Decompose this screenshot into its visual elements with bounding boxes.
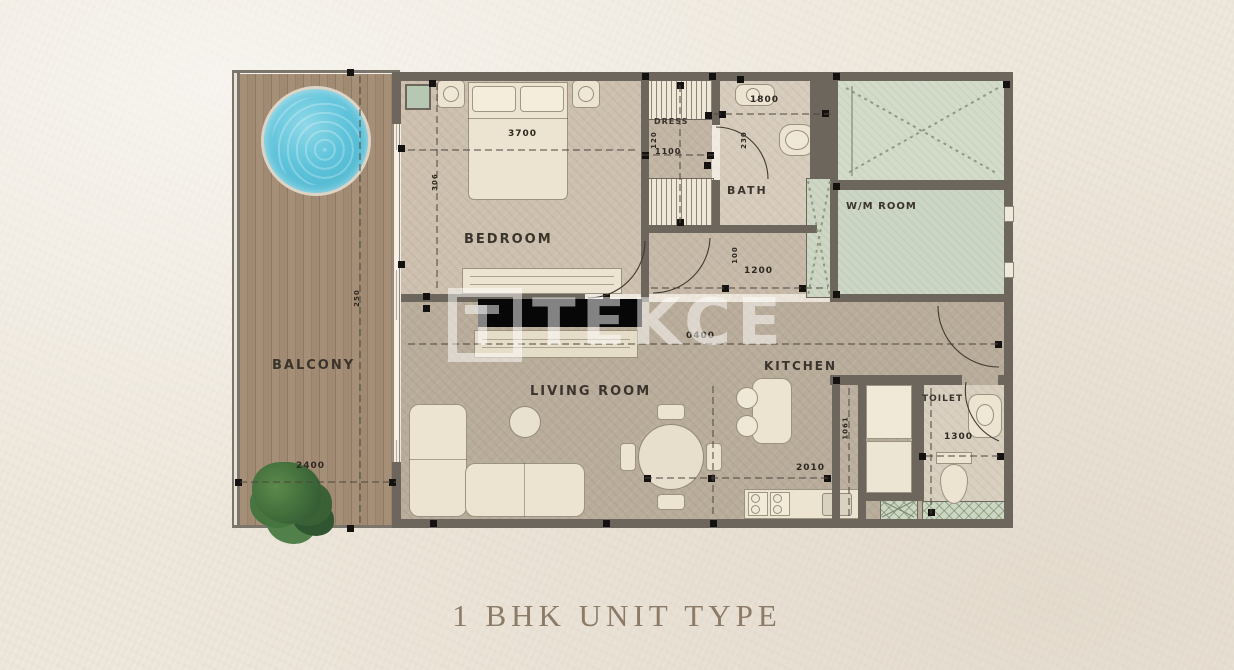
label-dress: DRESS (654, 117, 688, 126)
sofa-seam (409, 459, 467, 460)
duct-small (880, 499, 918, 521)
dim-marker (799, 285, 806, 292)
wall-bedroom-dress (641, 72, 649, 302)
chair (657, 494, 685, 510)
wall-hall (641, 225, 817, 233)
dim-bath-depth: 230 (740, 131, 748, 149)
blanket-line (468, 118, 568, 119)
dim-marker (389, 479, 396, 486)
dim-living-center: 0400 (686, 331, 715, 341)
glass-panel (395, 320, 399, 440)
dim-marker (347, 525, 354, 532)
dim-marker (707, 152, 714, 159)
sink-bowl-icon (976, 404, 994, 426)
tv-panel (478, 299, 642, 327)
sofa-chaise (409, 404, 467, 517)
wall-right (1004, 72, 1013, 528)
label-balcony: BALCONY (272, 358, 355, 373)
dim-marker (833, 73, 840, 80)
dim-marker (347, 69, 354, 76)
dim-marker (235, 479, 242, 486)
dim-kitchen-width: 2010 (796, 463, 825, 473)
wall-bottom (392, 519, 1013, 528)
wall-notch (1004, 206, 1014, 222)
bedroom-dresser (462, 268, 622, 294)
dim-balcony-depth: 250 (353, 289, 361, 307)
label-bedroom: BEDROOM (464, 232, 553, 247)
dim-bath-width: 1800 (750, 95, 779, 105)
dim-marker (709, 73, 716, 80)
label-toilet: TOILET (922, 394, 963, 404)
wall-washer-bottom (858, 493, 924, 501)
ac-unit (405, 84, 431, 110)
dim-marker (833, 291, 840, 298)
wall-stub-bottom-left (392, 462, 401, 528)
balcony-edge-bottom (232, 525, 400, 528)
wc-tank (936, 452, 972, 464)
dim-marker (919, 453, 926, 460)
dim-marker (833, 183, 840, 190)
tv-console (474, 330, 638, 358)
label-bath: BATH (727, 184, 768, 197)
burner-icon (751, 494, 760, 503)
dryer-unit (866, 441, 912, 493)
sofa-seam (524, 463, 525, 517)
stool (736, 387, 758, 409)
balcony-edge-top (232, 70, 400, 73)
burner-icon (751, 505, 760, 514)
tub-basin-icon (785, 130, 809, 150)
dim-marker (398, 261, 405, 268)
dim-bedroom-depth: 306 (431, 173, 439, 191)
dim-hall-depth: 100 (731, 246, 739, 264)
breakfast-table (752, 378, 792, 444)
dim-marker (824, 475, 831, 482)
dim-marker (642, 152, 649, 159)
dim-kitchen-depth: 1061 (842, 416, 850, 439)
dim-marker (642, 73, 649, 80)
chair (706, 443, 722, 471)
wall-toilet-top-stub (998, 375, 1004, 385)
lamp-icon (578, 86, 594, 102)
floor-plan-page: TEKCE BALCONY BEDROOM LIVING ROOM KITCHE… (0, 0, 1234, 670)
balcony-railing (232, 72, 240, 528)
duct-shaft (806, 178, 832, 298)
burner-icon (773, 494, 782, 503)
pouf (509, 406, 541, 438)
dim-marker (722, 285, 729, 292)
dim-dress-width: 1100 (655, 147, 681, 156)
burner-icon (773, 505, 782, 514)
shaft-room (838, 81, 1004, 180)
dim-marker (833, 377, 840, 384)
dim-bedroom-width: 3700 (508, 129, 537, 139)
lamp-icon (443, 86, 459, 102)
dim-toilet-width: 1300 (944, 432, 973, 442)
dresser-line (470, 284, 614, 285)
dim-marker (719, 111, 726, 118)
dim-marker (423, 305, 430, 312)
dim-marker (429, 80, 436, 87)
dim-marker (710, 520, 717, 527)
dim-dress-depth: 120 (650, 131, 658, 149)
pillow (520, 86, 564, 112)
pillow (472, 86, 516, 112)
dim-marker (822, 110, 829, 117)
dim-marker (995, 341, 1002, 348)
label-living-room: LIVING ROOM (530, 384, 651, 399)
page-title: 1 BHK UNIT TYPE (0, 598, 1234, 634)
dim-marker (997, 453, 1004, 460)
dim-balcony-width: 2400 (296, 461, 325, 471)
wall-top (392, 72, 1013, 81)
wall-toilet-top (830, 375, 962, 385)
dim-marker (708, 475, 715, 482)
dim-marker (704, 162, 711, 169)
sofa (465, 463, 585, 517)
dim-marker (737, 76, 744, 83)
dim-marker (430, 520, 437, 527)
glass-panel (395, 150, 399, 270)
wall-shaft-wm (838, 180, 1004, 190)
chair (657, 404, 685, 420)
pool (261, 86, 371, 196)
dim-hall-width: 1200 (744, 266, 773, 276)
dresser-line (470, 276, 614, 277)
dim-marker (677, 219, 684, 226)
wall-notch (1004, 262, 1014, 278)
wall-stub-top-left (392, 72, 401, 124)
label-wm-room: W/M ROOM (846, 201, 917, 212)
dim-marker (423, 293, 430, 300)
washer-unit (866, 385, 912, 439)
dim-marker (398, 145, 405, 152)
console-line (482, 347, 630, 348)
stool (736, 415, 758, 437)
dim-marker (603, 520, 610, 527)
dim-marker (705, 112, 712, 119)
dim-marker (677, 82, 684, 89)
chair (620, 443, 636, 471)
dim-marker (1003, 81, 1010, 88)
dim-marker (644, 475, 651, 482)
label-kitchen: KITCHEN (764, 359, 837, 373)
dim-marker (928, 509, 935, 516)
wall-kitchen-right (832, 375, 840, 519)
wall-wm-bottom (830, 294, 1004, 302)
console-line (482, 339, 630, 340)
